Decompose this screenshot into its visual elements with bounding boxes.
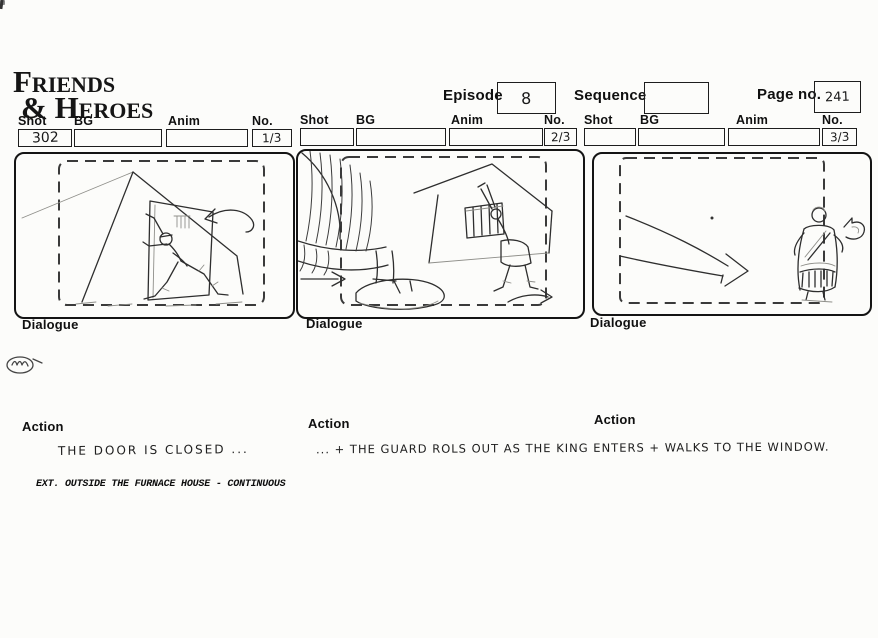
action-label-1: Action <box>22 419 64 434</box>
king-back-view-drawing <box>794 207 842 302</box>
furnace-house-background-drawing <box>414 164 552 263</box>
panel-3 <box>592 152 872 316</box>
turn-arrow-icon <box>844 218 864 239</box>
panel-2-sketch <box>298 151 583 317</box>
shot-box-3 <box>584 128 636 146</box>
panel-1-sketch <box>16 154 293 317</box>
shot-label-3: Shot <box>584 113 613 127</box>
panel-2 <box>296 149 585 319</box>
motion-arrow-left-icon <box>301 272 345 286</box>
anim-label-3: Anim <box>736 113 768 127</box>
scene-heading-1: EXT. OUTSIDE THE FURNACE HOUSE - CONTINU… <box>36 479 285 490</box>
safe-area-frame <box>341 157 546 305</box>
no-box-2: 2/3 <box>544 128 577 146</box>
king-robe-foot-drawing <box>298 151 444 309</box>
action-label-3: Action <box>594 412 636 427</box>
shot-box-2 <box>300 128 354 146</box>
page-no-box: 241 <box>814 81 861 113</box>
bg-box-2 <box>356 128 446 146</box>
anim-box-1 <box>166 129 248 147</box>
dialogue-label-3: Dialogue <box>590 315 647 330</box>
anim-label-1: Anim <box>168 114 200 128</box>
sequence-label: Sequence <box>574 87 646 104</box>
action-text-2: ... + THE GUARD ROLS OUT AS THE KING ENT… <box>316 440 830 457</box>
no-box-3: 3/3 <box>822 128 857 146</box>
page-no-label: Page no. <box>757 86 821 103</box>
dialogue-label-1: Dialogue <box>22 317 79 332</box>
anim-box-3 <box>728 128 820 146</box>
panel-1 <box>14 152 295 319</box>
bg-box-1 <box>74 129 162 147</box>
guard-running-figure-drawing <box>478 183 538 291</box>
shot-label-2: Shot <box>300 113 329 127</box>
anim-label-2: Anim <box>451 113 483 127</box>
margin-scribble <box>4 352 46 378</box>
shot-box-1: 302 <box>18 129 72 147</box>
episode-label: Episode <box>443 87 503 104</box>
furnace-house-drawing <box>22 172 243 306</box>
action-label-2: Action <box>308 416 350 431</box>
bg-label-3: BG <box>640 113 659 127</box>
no-value-2: 2/3 <box>551 130 571 145</box>
panel-3-sketch <box>594 154 870 314</box>
bg-label-2: BG <box>356 113 375 127</box>
no-box-1: 1/3 <box>252 129 292 147</box>
bg-box-3 <box>638 128 725 146</box>
sequence-box <box>644 82 709 114</box>
bg-label-1: BG <box>74 114 93 128</box>
no-value-1: 1/3 <box>262 131 282 146</box>
episode-value: 8 <box>521 88 532 107</box>
pencil-dot <box>711 217 714 220</box>
episode-box: 8 <box>497 82 556 114</box>
shot-label-1: Shot <box>18 114 47 128</box>
anim-box-2 <box>449 128 543 146</box>
no-label-1: No. <box>252 114 273 128</box>
shot-value-1: 302 <box>31 130 58 147</box>
camera-move-arrow-icon <box>620 216 748 286</box>
no-value-3: 3/3 <box>830 130 850 145</box>
no-label-2: No. <box>544 113 565 127</box>
guard-figure-drawing <box>143 214 228 299</box>
action-text-1: THE DOOR IS CLOSED ... <box>58 442 249 458</box>
no-label-3: No. <box>822 113 843 127</box>
dialogue-label-2: Dialogue <box>306 316 363 331</box>
page-no-value: 241 <box>825 89 850 105</box>
storyboard-page: Friends & Heroes Episode 8 Sequence Page… <box>0 0 878 638</box>
